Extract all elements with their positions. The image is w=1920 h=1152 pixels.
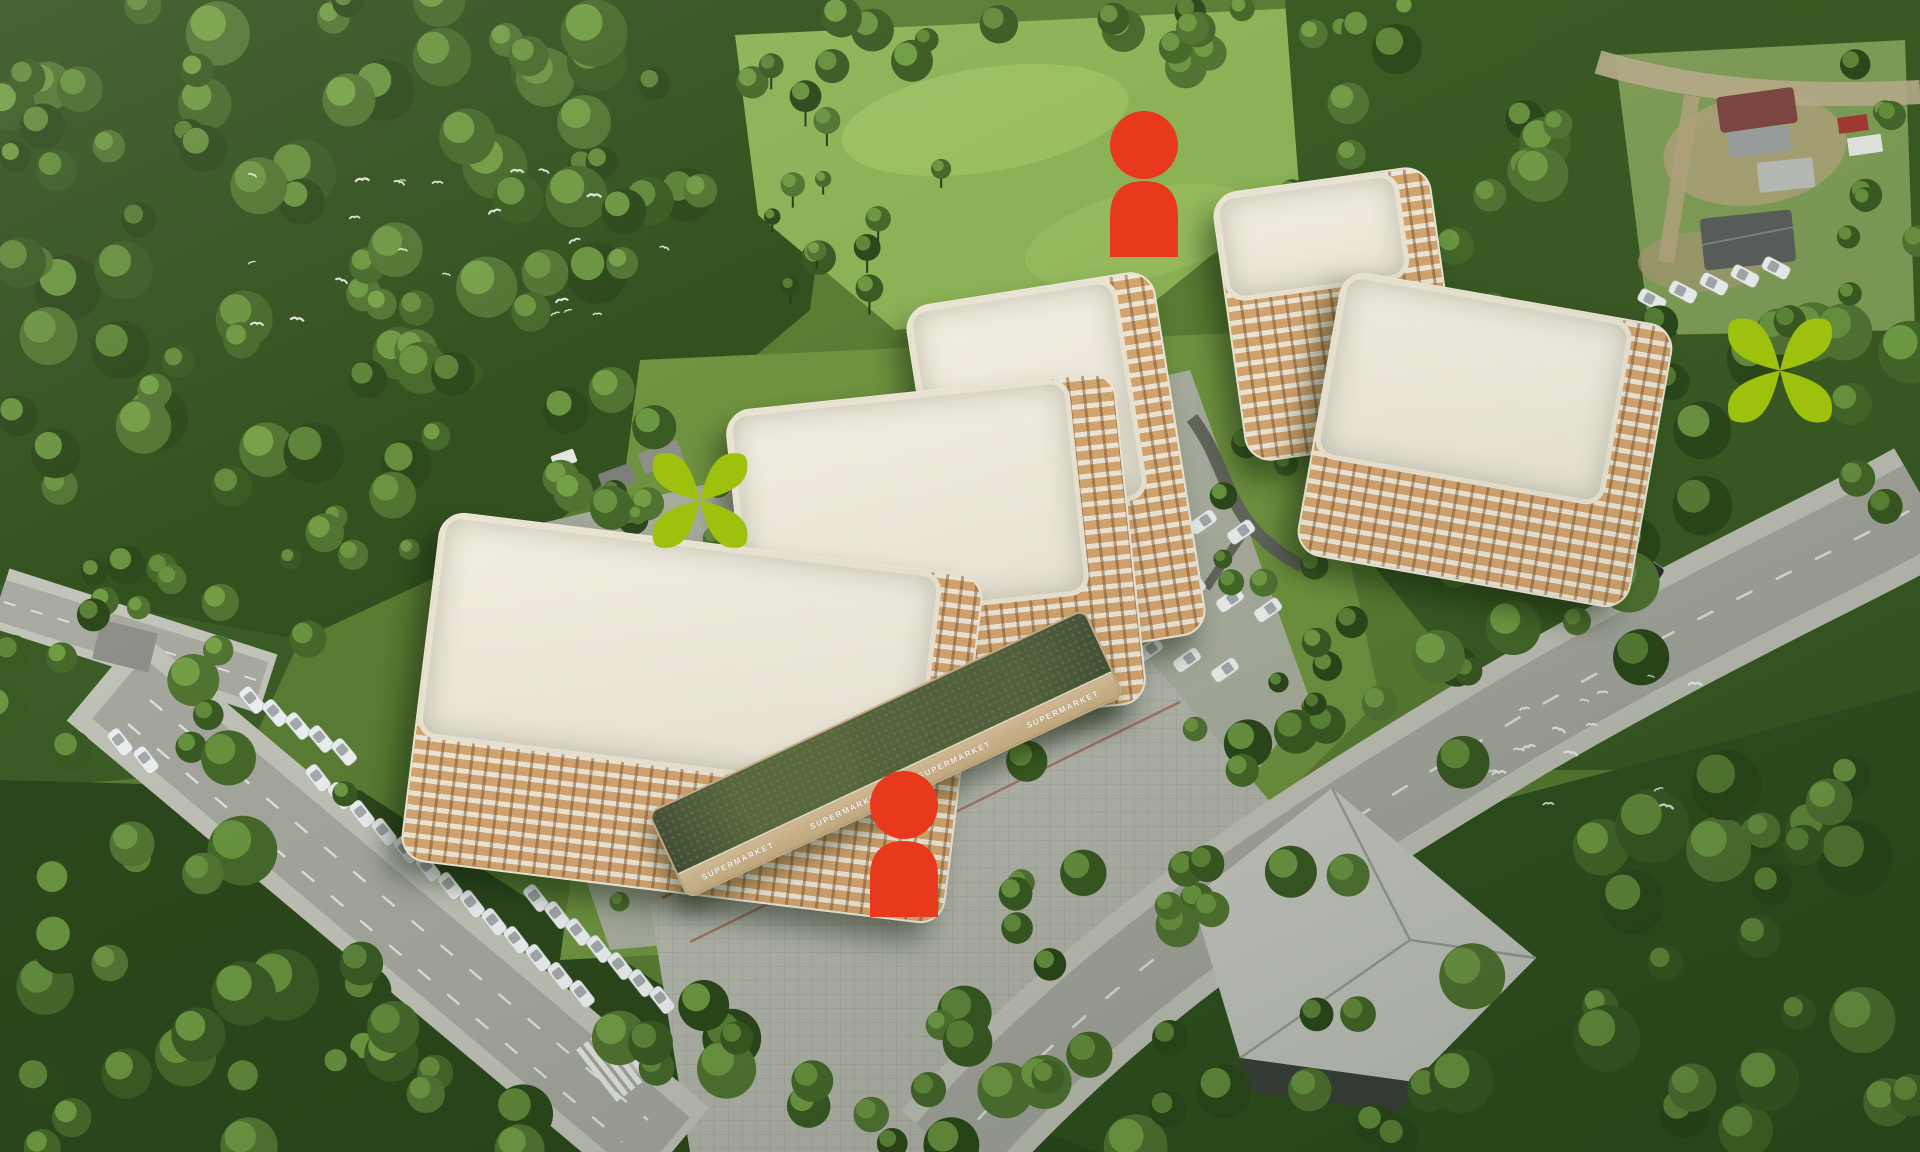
building-east-roof	[1313, 271, 1635, 507]
building-east	[1294, 269, 1677, 611]
aerial-site-plan: SUPERMARKETSUPERMARKETSUPERMARKETSUPERMA…	[0, 0, 1920, 1152]
buildings-layer: SUPERMARKETSUPERMARKETSUPERMARKETSUPERMA…	[0, 0, 1920, 1152]
